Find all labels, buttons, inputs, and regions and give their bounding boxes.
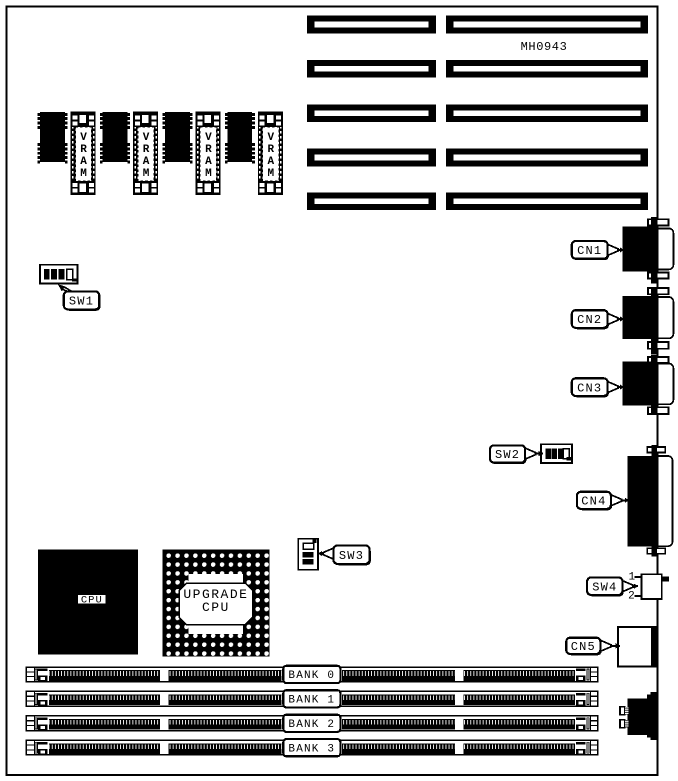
svg-text:R: R xyxy=(267,144,274,156)
svg-text:V: V xyxy=(80,132,87,144)
svg-text:A: A xyxy=(205,156,212,168)
svg-text:CN2: CN2 xyxy=(577,313,602,327)
svg-text:CPU: CPU xyxy=(81,595,103,607)
svg-text:BANK 0: BANK 0 xyxy=(288,670,335,682)
svg-text:SW2: SW2 xyxy=(495,448,520,462)
svg-text:M: M xyxy=(205,168,212,180)
svg-text:2: 2 xyxy=(628,590,635,602)
svg-text:CN3: CN3 xyxy=(577,381,602,395)
svg-text:A: A xyxy=(80,156,87,168)
svg-text:BANK 2: BANK 2 xyxy=(288,719,335,731)
svg-text:A: A xyxy=(267,156,274,168)
svg-text:V: V xyxy=(267,132,274,144)
svg-text:R: R xyxy=(205,144,212,156)
svg-text:SW1: SW1 xyxy=(69,295,94,309)
svg-text:MH0943: MH0943 xyxy=(521,40,568,54)
svg-text:M: M xyxy=(143,168,150,180)
svg-text:BANK 1: BANK 1 xyxy=(288,694,335,706)
svg-text:A: A xyxy=(143,156,150,168)
svg-text:SW4: SW4 xyxy=(592,580,617,594)
svg-text:BANK 3: BANK 3 xyxy=(288,743,335,755)
svg-text:V: V xyxy=(205,132,212,144)
svg-text:R: R xyxy=(143,144,150,156)
svg-text:SW3: SW3 xyxy=(339,549,364,563)
svg-text:1: 1 xyxy=(628,571,635,583)
svg-text:CN1: CN1 xyxy=(577,244,602,258)
svg-text:M: M xyxy=(80,168,87,180)
svg-text:CN4: CN4 xyxy=(581,495,606,509)
svg-text:CPU: CPU xyxy=(202,600,230,615)
svg-text:R: R xyxy=(80,144,87,156)
svg-text:CN5: CN5 xyxy=(571,640,596,654)
svg-text:M: M xyxy=(267,168,274,180)
svg-text:V: V xyxy=(143,132,150,144)
